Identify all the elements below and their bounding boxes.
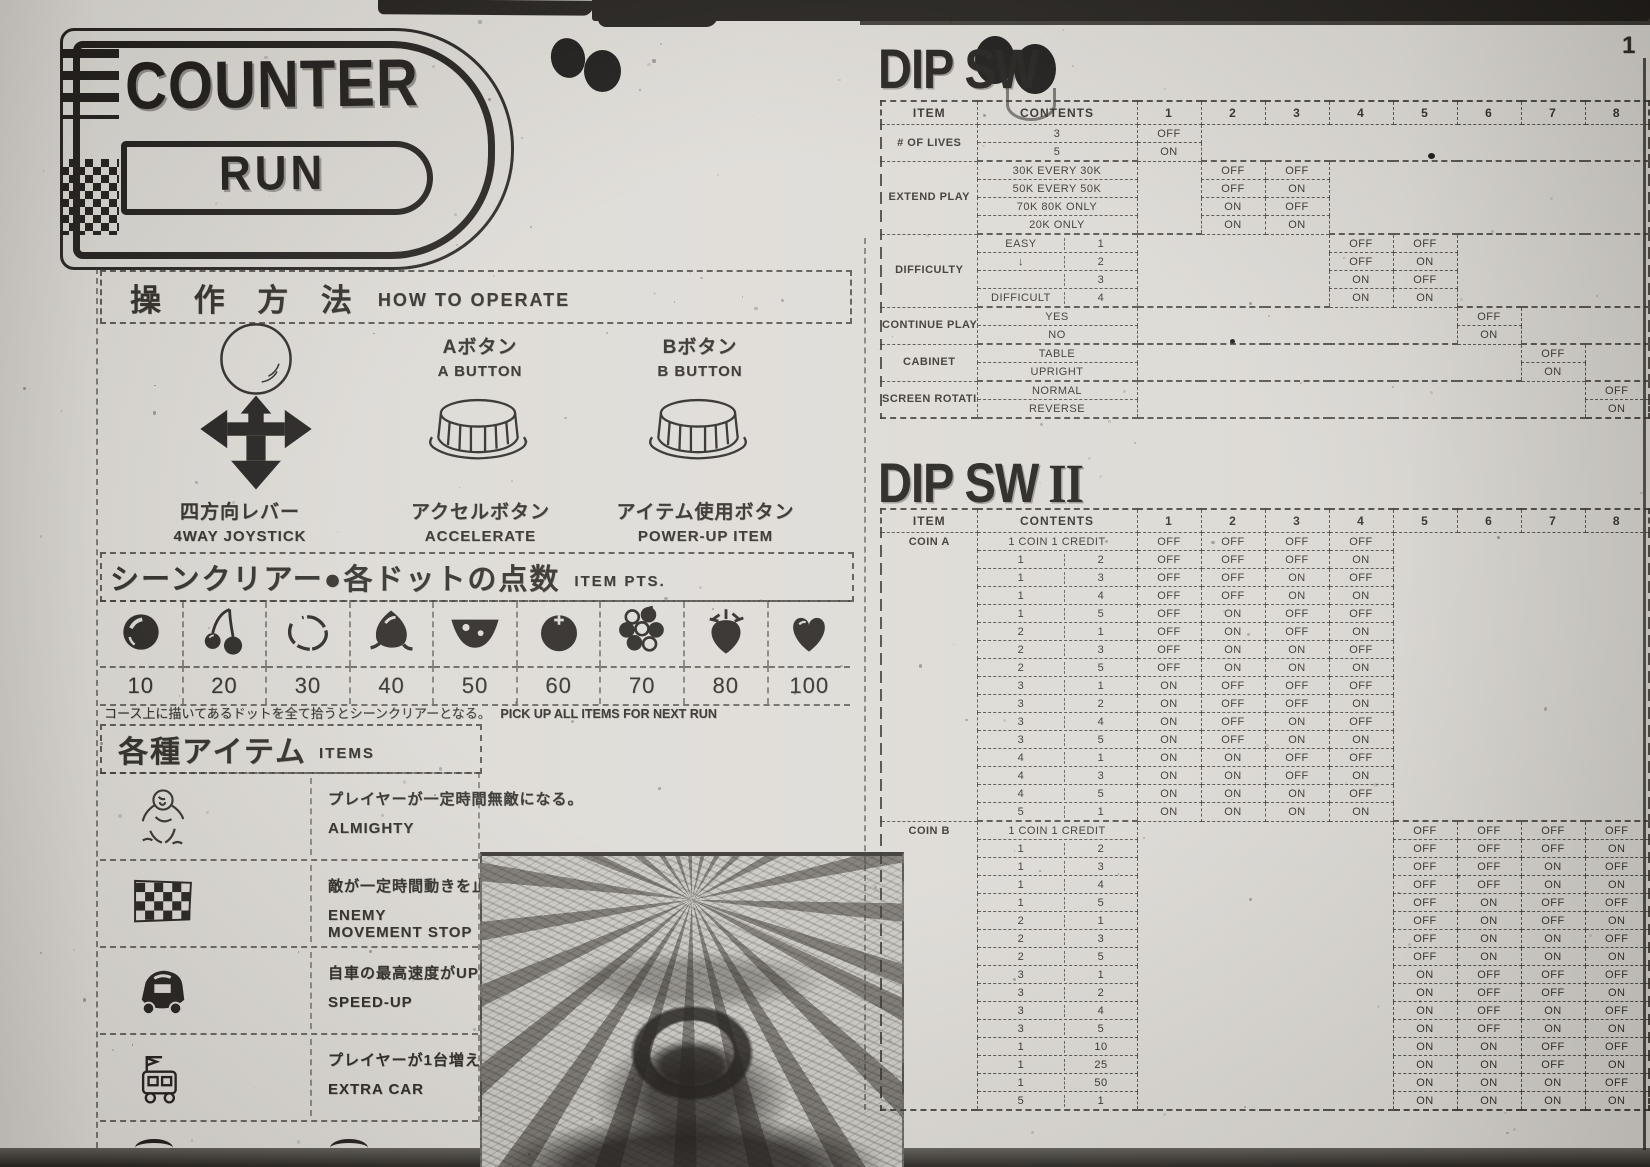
dip-switch-empty [1457,731,1521,749]
dip-switch-empty [1585,533,1649,551]
dip-switch-value: ON [1457,1074,1521,1092]
dip-switch-empty [1585,143,1649,162]
orange-icon [535,608,583,661]
photocopy-speck [1506,1132,1509,1135]
dip-switch-empty [1329,858,1393,876]
photocopy-speck [478,20,481,23]
dip-header-cell: 5 [1393,101,1457,125]
column-divider [864,238,866,1110]
dip-switch-empty [1585,695,1649,713]
dip-switch-empty [1329,180,1393,198]
photocopy-speck [1099,475,1102,478]
dip-contents-cell: 45 [977,785,1137,803]
dip-switch-empty [1265,840,1329,858]
dip-switch-empty [1585,289,1649,308]
item-pts-title-jp: シーンクリアー●各ドットの点数 [110,556,560,598]
b-button-label-jp: Bボタン [610,332,790,359]
dip-switch-empty [1393,569,1457,587]
dip-sw-2-title-text: DIP SW [878,451,1038,514]
dip-switch-value: ON [1265,785,1329,803]
dip-switch-empty [1201,326,1265,345]
dip-row: 13OFFOFFONOFF [881,858,1649,876]
dip-switch-empty [1201,234,1265,253]
dip-switch-value: OFF [1329,234,1393,253]
dip-switch-value: ON [1457,894,1521,912]
dip-switch-value: ON [1393,1002,1457,1020]
dip-switch-empty [1329,1020,1393,1038]
dip-switch-empty [1457,381,1521,400]
extra-car-icon [118,1043,208,1113]
scene-clear-note-jp: コース上に描いてあるドットを全て拾うとシーンクリアーとなる。 [104,706,491,721]
dip-contents-cell: ↓2 [977,253,1137,271]
dip-switch-empty [1521,216,1585,235]
dip-switch-value: OFF [1265,623,1329,641]
dip-switch-empty [1265,307,1329,326]
dip-switch-empty [1265,876,1329,894]
dip-switch-value: ON [1137,803,1201,822]
dip-switch-empty [1137,1020,1201,1038]
dip-switch-empty [1201,363,1265,382]
dip-switch-empty [1521,587,1585,605]
dip-switch-empty [1457,271,1521,289]
dip-switch-value: ON [1393,289,1457,308]
dip-header-cell: 2 [1201,509,1265,533]
dip-switch-empty [1201,858,1265,876]
dip-switch-empty [1329,966,1393,984]
dip-switch-value: OFF [1329,641,1393,659]
dip-sw-1-table: ITEMCONTENTS12345678# OF LIVES3OFF5ONEXT… [880,100,1650,419]
dip-switch-value: OFF [1329,713,1393,731]
items-list: プレイヤーが一定時間無敵になる。 ALMIGHTY 敵が一定時間動きを止める。 … [100,772,480,1122]
dip-switch-empty [1521,677,1585,695]
dip-item-cell: DIFFICULTY [881,234,977,307]
dip-switch-value: OFF [1201,713,1265,731]
dip-switch-empty [1457,344,1521,363]
dip-header-cell: 8 [1585,509,1649,533]
dip-switch-empty [1329,876,1393,894]
dip-switch-empty [1137,948,1201,966]
photocopy-speck [1031,1131,1034,1134]
dip-switch-empty [1329,894,1393,912]
dip-switch-empty [1137,326,1201,345]
dip-switch-value: ON [1201,605,1265,623]
item-row-divider [310,1039,312,1116]
dip-switch-empty [1329,198,1393,216]
dip-switch-empty [1201,966,1265,984]
photocopy-speck [40,535,42,537]
item-points-value: 10 [100,666,184,704]
dip-switch-empty [1457,623,1521,641]
dip-switch-value: OFF [1521,344,1585,363]
dip-switch-value: OFF [1329,785,1393,803]
dip-switch-empty [1201,912,1265,930]
dip-switch-empty [1201,400,1265,419]
dip-switch-empty [1201,1074,1265,1092]
game-logo: COUNTER RUN [60,28,514,270]
dip-switch-empty [1457,533,1521,551]
photocopy-speck [838,79,841,82]
logo-stripes [61,49,119,119]
dip-switch-empty [1585,253,1649,271]
dip-switch-empty [1137,234,1201,253]
dip-switch-value: OFF [1329,253,1393,271]
dip-switch-empty [1137,271,1201,289]
dip-switch-empty [1265,1020,1329,1038]
dip-switch-value: ON [1521,1002,1585,1020]
dip-switch-empty [1201,253,1265,271]
dip-switch-value: OFF [1393,894,1457,912]
dip-switch-empty [1393,587,1457,605]
dip-contents-cell: REVERSE [977,400,1137,419]
dip-switch-value: ON [1521,1074,1585,1092]
dip-switch-value: OFF [1457,1002,1521,1020]
item-points-value: 40 [351,666,435,704]
dip-contents-cell: 15 [977,605,1137,623]
dip-switch-value: OFF [1137,605,1201,623]
dip-switch-value: OFF [1329,677,1393,695]
dip-switch-value: ON [1201,749,1265,767]
dip-row: 35ONOFFONON [881,1020,1649,1038]
left-dashed-border [96,268,98,1148]
dip-switch-empty [1329,381,1393,400]
dip-switch-value: ON [1265,659,1329,677]
dip-switch-value: ON [1521,858,1585,876]
dip-switch-value: OFF [1137,587,1201,605]
dip-switch-value: OFF [1329,533,1393,551]
dip-switch-empty [1521,695,1585,713]
photocopy-speck [153,411,157,415]
dip-row: 31ONOFFOFFOFF [881,677,1649,695]
dip-switch-empty [1137,858,1201,876]
dip-switch-empty [1137,363,1201,382]
dip-row: 5ON [881,143,1649,162]
dip-switch-empty [1137,930,1201,948]
dip-header-cell: 1 [1137,509,1201,533]
dip-row: 41ONONOFFOFF [881,749,1649,767]
dip-switch-empty [1393,125,1457,143]
dip-row: 150ONONONOFF [881,1074,1649,1092]
dip-row: CONTINUE PLAYYESOFF [881,307,1649,326]
dip-switch-value: OFF [1329,749,1393,767]
photocopy-speck [1164,88,1165,89]
dip-switch-empty [1137,161,1201,180]
b-button-label: Bボタン B BUTTON [610,332,790,380]
dip-switch-empty [1457,289,1521,308]
dip-contents-cell: 50K EVERY 50K [977,180,1137,198]
dip-switch-empty [1393,749,1457,767]
game-screen-photo [480,852,904,1167]
dip-switch-empty [1265,930,1329,948]
dip-header-cell: ITEM [881,509,977,533]
dip-contents-cell: YES [977,307,1137,326]
dip-switch-value: ON [1585,1020,1649,1038]
dip-switch-value: ON [1265,641,1329,659]
dip-switch-empty [1329,143,1393,162]
dip-switch-value: ON [1329,803,1393,822]
dip-row: DIFFICULT4ONON [881,289,1649,308]
item-points-value: 20 [184,666,268,704]
dip-switch-empty [1137,821,1201,840]
dip-switch-value: ON [1457,1056,1521,1074]
dip-switch-value: ON [1137,767,1201,785]
dip-contents-cell: 41 [977,749,1137,767]
dip-switch-value: ON [1201,641,1265,659]
dip-switch-empty [1585,363,1649,382]
dip-switch-empty [1137,1038,1201,1056]
dip-switch-value: OFF [1393,876,1457,894]
item-row-extra-car: プレイヤーが1台増える。 EXTRA CAR [100,1035,478,1122]
dip-row: NOON [881,326,1649,345]
dip-switch-empty [1329,161,1393,180]
dip-switch-value: ON [1137,785,1201,803]
fruit-icon-row [100,602,850,666]
dip-contents-cell: 25 [977,659,1137,677]
photocopy-speck [40,952,43,955]
photo-steering-wheel [590,974,794,1132]
dip-switch-empty [1457,695,1521,713]
dip-switch-empty [1329,930,1393,948]
dip-switch-empty [1457,767,1521,785]
item-icon-cherry [184,602,268,666]
photocopy-smudge [598,14,718,27]
dip-switch-empty [1329,363,1393,382]
dip-switch-value: ON [1393,253,1457,271]
dip-switch-value: ON [1329,271,1393,289]
joystick-label: 四方向レバー 4WAY JOYSTICK [135,497,345,545]
dip-switch-empty [1585,326,1649,345]
dip-switch-value: ON [1329,623,1393,641]
b-button-illustration [645,392,751,475]
dip-item-cell: COIN B [881,821,977,1110]
item-desc-en: ENEMY MOVEMENT STOP [328,907,478,941]
dip-switch-empty [1585,216,1649,235]
dip-switch-empty [1329,1038,1393,1056]
dip-switch-empty [1393,731,1457,749]
dip-contents-cell: NO [977,326,1137,345]
dip-switch-value: ON [1585,876,1649,894]
dip-switch-empty [1265,1056,1329,1074]
dip-row: 13OFFOFFONOFF [881,569,1649,587]
dip-switch-empty [1457,198,1521,216]
dip-switch-value: ON [1329,695,1393,713]
dip-switch-value: ON [1265,569,1329,587]
dip-switch-empty [1137,180,1201,198]
dip-switch-empty [1585,569,1649,587]
dip-switch-empty [1265,1074,1329,1092]
dip-switch-empty [1521,400,1585,419]
dip-switch-value: ON [1457,1038,1521,1056]
dip-contents-cell: EASY1 [977,234,1137,253]
items-title-en: ITEMS [319,745,375,762]
dip-switch-value: OFF [1265,749,1329,767]
photocopy-speck [1504,1112,1507,1115]
dip-item-cell: SCREEN ROTATION [881,381,977,418]
dip-switch-empty [1457,677,1521,695]
dip-switch-empty [1457,569,1521,587]
dip-header-row: ITEMCONTENTS12345678 [881,101,1649,125]
dip-switch-value: OFF [1457,1020,1521,1038]
dip-switch-empty [1265,125,1329,143]
accelerate-label: アクセルボタン ACCELERATE [388,497,573,545]
dip-switch-empty [1457,400,1521,419]
dip-switch-value: ON [1585,912,1649,930]
dip-sw-1-title: DIP SW [878,36,1038,101]
dip-switch-value: OFF [1137,533,1201,551]
dip-switch-empty [1393,659,1457,677]
dip-switch-empty [1585,344,1649,363]
dip-switch-value: ON [1457,948,1521,966]
photocopy-speck [297,1140,300,1143]
dip-switch-empty [1329,1002,1393,1020]
dip-switch-empty [1457,605,1521,623]
dip-switch-value: ON [1393,1056,1457,1074]
dip-switch-empty [1329,1092,1393,1111]
dip-switch-empty [1393,713,1457,731]
dip-switch-empty [1521,198,1585,216]
dip-switch-value: ON [1585,840,1649,858]
dip-switch-empty [1521,271,1585,289]
item-points-value: 50 [434,666,518,704]
dip-header-cell: CONTENTS [977,509,1137,533]
dip-switch-empty [1521,125,1585,143]
dip-row: REVERSEON [881,400,1649,419]
dip-switch-empty [1521,381,1585,400]
dip-switch-value: OFF [1393,821,1457,840]
dip-switch-empty [1457,641,1521,659]
dip-switch-value: OFF [1201,551,1265,569]
dip-switch-empty [1393,623,1457,641]
dip-header-cell: 6 [1457,101,1521,125]
dip-switch-empty [1521,767,1585,785]
dip-switch-empty [1585,161,1649,180]
dip-switch-empty [1585,713,1649,731]
dip-switch-empty [1265,253,1329,271]
dip-switch-value: OFF [1521,1056,1585,1074]
dip-switch-empty [1201,271,1265,289]
photocopy-speck [373,333,374,334]
dip-switch-empty [1457,253,1521,271]
dip-switch-value: ON [1201,216,1265,235]
dip-switch-value: OFF [1457,307,1521,326]
dip-switch-value: OFF [1393,930,1457,948]
photocopy-speck [658,787,661,790]
dip-switch-empty [1585,198,1649,216]
dip-switch-empty [1457,749,1521,767]
dip-switch-empty [1201,840,1265,858]
dip-row: 12OFFOFFOFFON [881,551,1649,569]
dip-switch-value: OFF [1393,858,1457,876]
logo-checkerboard [61,159,119,235]
dip-switch-empty [1457,785,1521,803]
dip-switch-value: ON [1585,1056,1649,1074]
dip-switch-empty [1265,1092,1329,1111]
dip-row: COIN B1 COIN 1 CREDITOFFOFFOFFOFF [881,821,1649,840]
dip-switch-empty [1457,143,1521,162]
photocopy-speck [647,63,650,66]
power-up-item-label-en: POWER-UP ITEM [588,528,823,545]
dip-switch-value: OFF [1393,271,1457,289]
dip-switch-empty [1457,587,1521,605]
dip-switch-empty [1521,307,1585,326]
dip-switch-value: OFF [1585,858,1649,876]
scene-clear-note-en: PICK UP ALL ITEMS FOR NEXT RUN [500,707,716,721]
dip-item-cell: CONTINUE PLAY [881,307,977,344]
photocopy-speck [606,332,608,334]
dip-header-cell: 3 [1265,509,1329,533]
dip-switch-empty [1201,289,1265,308]
dip-switch-empty [1137,1056,1201,1074]
dip-row: COIN A1 COIN 1 CREDITOFFOFFOFFOFF [881,533,1649,551]
dip-contents-cell: 15 [977,894,1137,912]
dip-switch-empty [1201,876,1265,894]
joystick-label-en: 4WAY JOYSTICK [135,528,345,545]
dip-item-cell: EXTEND PLAY [881,161,977,234]
dip-header-cell: 3 [1265,101,1329,125]
dip-switch-empty [1265,143,1329,162]
checkered-flag-icon [118,869,208,939]
dip-switch-empty [1393,198,1457,216]
dip-switch-empty [1201,143,1265,162]
joystick-illustration [160,318,352,499]
dip-header-cell: 7 [1521,509,1585,533]
dip-contents-cell: 1 COIN 1 CREDIT [977,533,1137,551]
dip-contents-cell: DIFFICULT4 [977,289,1137,308]
dip-switch-empty [1137,1092,1201,1111]
dip-switch-empty [1585,785,1649,803]
logo-title-run: RUN [219,146,327,202]
dip-row: DIFFICULTYEASY1OFFOFF [881,234,1649,253]
dip-contents-cell: 13 [977,858,1137,876]
dip-switch-empty [1137,840,1201,858]
dip-switch-empty [1265,381,1329,400]
dip-switch-value: OFF [1585,1002,1649,1020]
dip-switch-empty [1521,234,1585,253]
photocopy-speck [459,487,460,488]
dip-switch-empty [1137,894,1201,912]
dip-switch-empty [1521,605,1585,623]
dip-switch-value: ON [1329,289,1393,308]
dip-switch-empty [1137,966,1201,984]
dip-switch-empty [1201,307,1265,326]
photocopy-speck [652,59,656,63]
accelerate-label-jp: アクセルボタン [388,497,573,524]
dip-switch-empty [1393,551,1457,569]
dip-switch-empty [1393,381,1457,400]
dip-contents-cell: 13 [977,569,1137,587]
dip-switch-value: OFF [1521,912,1585,930]
dip-switch-value: ON [1521,876,1585,894]
a-button-label-en: A BUTTON [390,363,570,380]
dip-switch-empty [1265,858,1329,876]
dip-switch-empty [1265,912,1329,930]
dip-switch-value: OFF [1265,551,1329,569]
dip-switch-empty [1393,307,1457,326]
dip-switch-value: OFF [1393,840,1457,858]
dip-switch-empty [1393,641,1457,659]
dip-switch-empty [1585,125,1649,143]
dip-switch-value: ON [1585,948,1649,966]
item-icon-heart [769,602,851,666]
dip-row: 23OFFONONOFF [881,930,1649,948]
dip-switch-value: OFF [1137,659,1201,677]
dip-switch-empty [1393,161,1457,180]
photocopy-speck [564,417,567,420]
item-icon-dot [100,602,184,666]
dip-switch-value: ON [1137,713,1201,731]
dip-switch-value: OFF [1201,677,1265,695]
dip-switch-empty [1137,876,1201,894]
dip-contents-cell: 31 [977,966,1137,984]
